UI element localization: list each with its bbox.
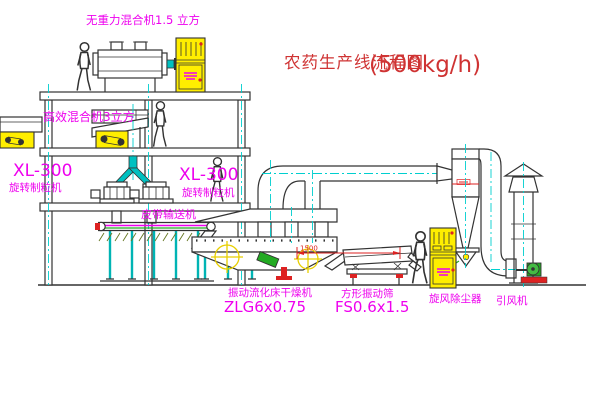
label-dryer-model: ZLG6x0.75 (224, 298, 306, 316)
fluid-bed-dryer (192, 209, 352, 280)
discharge-stub-left (112, 211, 121, 223)
edge-granulator-machine (0, 117, 42, 148)
dimension-1500-text: 1500 (300, 245, 318, 253)
label-high-efficiency-mixer: 高效混合机3立方 (43, 109, 135, 124)
label-mixer-top: 无重力混合机1.5 立方 (86, 13, 200, 27)
label-granulator-left-model: XL-300 (13, 161, 72, 181)
label-fan: 引风机 (496, 294, 528, 307)
vibrating-screen (343, 246, 421, 285)
control-cabinet-top (176, 38, 205, 92)
label-screen-model: FS0.6x1.5 (335, 298, 409, 316)
label-cyclone: 旋风除尘器 (429, 292, 482, 305)
control-cabinet-right (430, 228, 456, 288)
rotary-granulator-right (130, 182, 173, 203)
label-granulator-center-name: 旋转制粒机 (182, 186, 235, 199)
worker-figure (154, 102, 167, 147)
rotary-granulator-left (91, 182, 134, 203)
label-granulator-left-name: 旋转制粒机 (9, 181, 62, 194)
induced-draft-fan (516, 263, 547, 283)
label-granulator-center-model: XL-300 (179, 165, 238, 185)
gravity-free-mixer (93, 42, 178, 92)
diagram-canvas: 1500 (0, 0, 600, 403)
cad-flow-diagram: 1500 (0, 0, 600, 403)
label-belt-conveyor: 皮带输送机 (141, 207, 196, 221)
page-title-capacity: (500kg/h) (369, 52, 481, 78)
worker-figure (77, 43, 90, 91)
